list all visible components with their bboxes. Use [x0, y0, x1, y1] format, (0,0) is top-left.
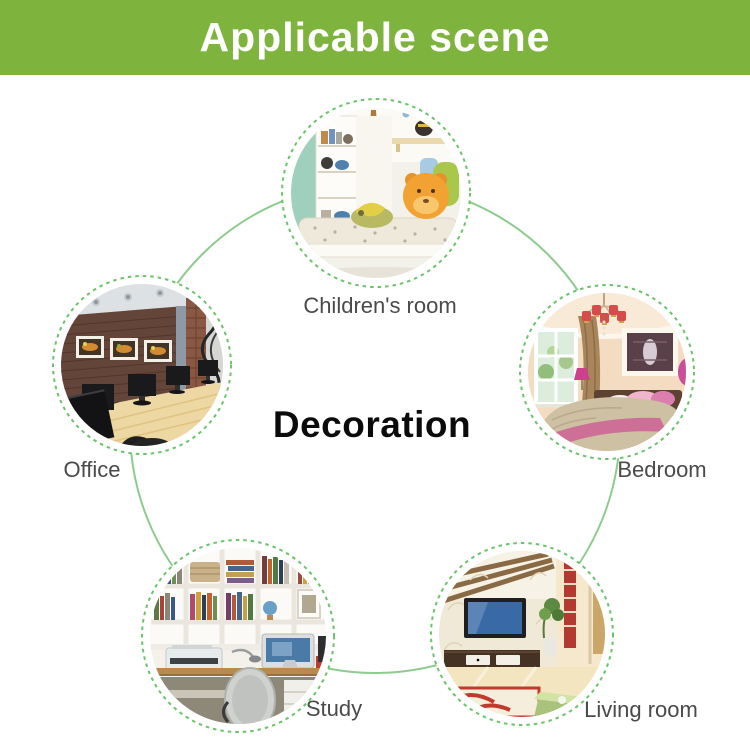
children-room-label: Children's room: [303, 293, 456, 319]
applicable-scene-banner: Applicable scene: [0, 0, 750, 75]
children-room-node: [282, 99, 470, 287]
bedroom-label: Bedroom: [617, 457, 706, 483]
office-label: Office: [63, 457, 120, 483]
applicable-scene-page: Applicable scene Decoration Children's r…: [0, 0, 750, 750]
bedroom-node: [520, 285, 698, 459]
banner-title: Applicable scene: [200, 14, 551, 61]
center-decoration-label: Decoration: [273, 404, 471, 446]
living-room-photo: [439, 551, 606, 717]
study-label: Study: [306, 696, 362, 722]
office-node: [48, 276, 231, 456]
living-room-label: Living room: [584, 697, 698, 723]
scene-diagram: [0, 0, 750, 750]
